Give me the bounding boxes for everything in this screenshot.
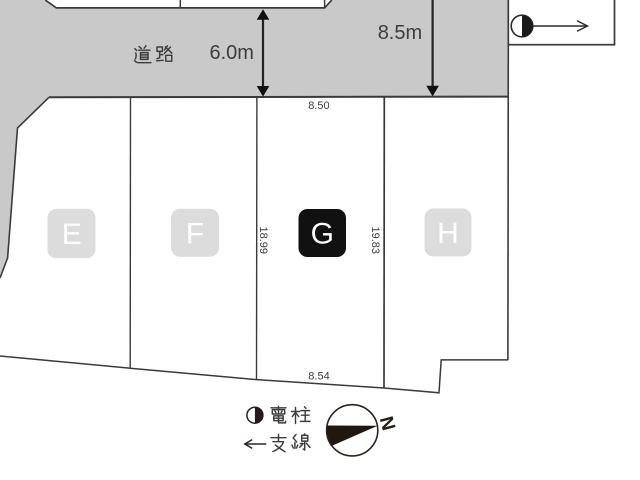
svg-text:8.54: 8.54 [308, 370, 329, 382]
svg-text:8.5m: 8.5m [378, 22, 422, 44]
svg-text:E: E [62, 218, 82, 251]
svg-text:8.50: 8.50 [308, 100, 329, 112]
svg-text:G: G [311, 218, 334, 251]
svg-text:18.99: 18.99 [257, 227, 269, 255]
svg-text:19.83: 19.83 [369, 227, 381, 255]
svg-text:6.0m: 6.0m [210, 42, 254, 64]
svg-text:H: H [437, 217, 459, 250]
svg-text:F: F [186, 217, 204, 250]
svg-text:N: N [375, 414, 399, 433]
